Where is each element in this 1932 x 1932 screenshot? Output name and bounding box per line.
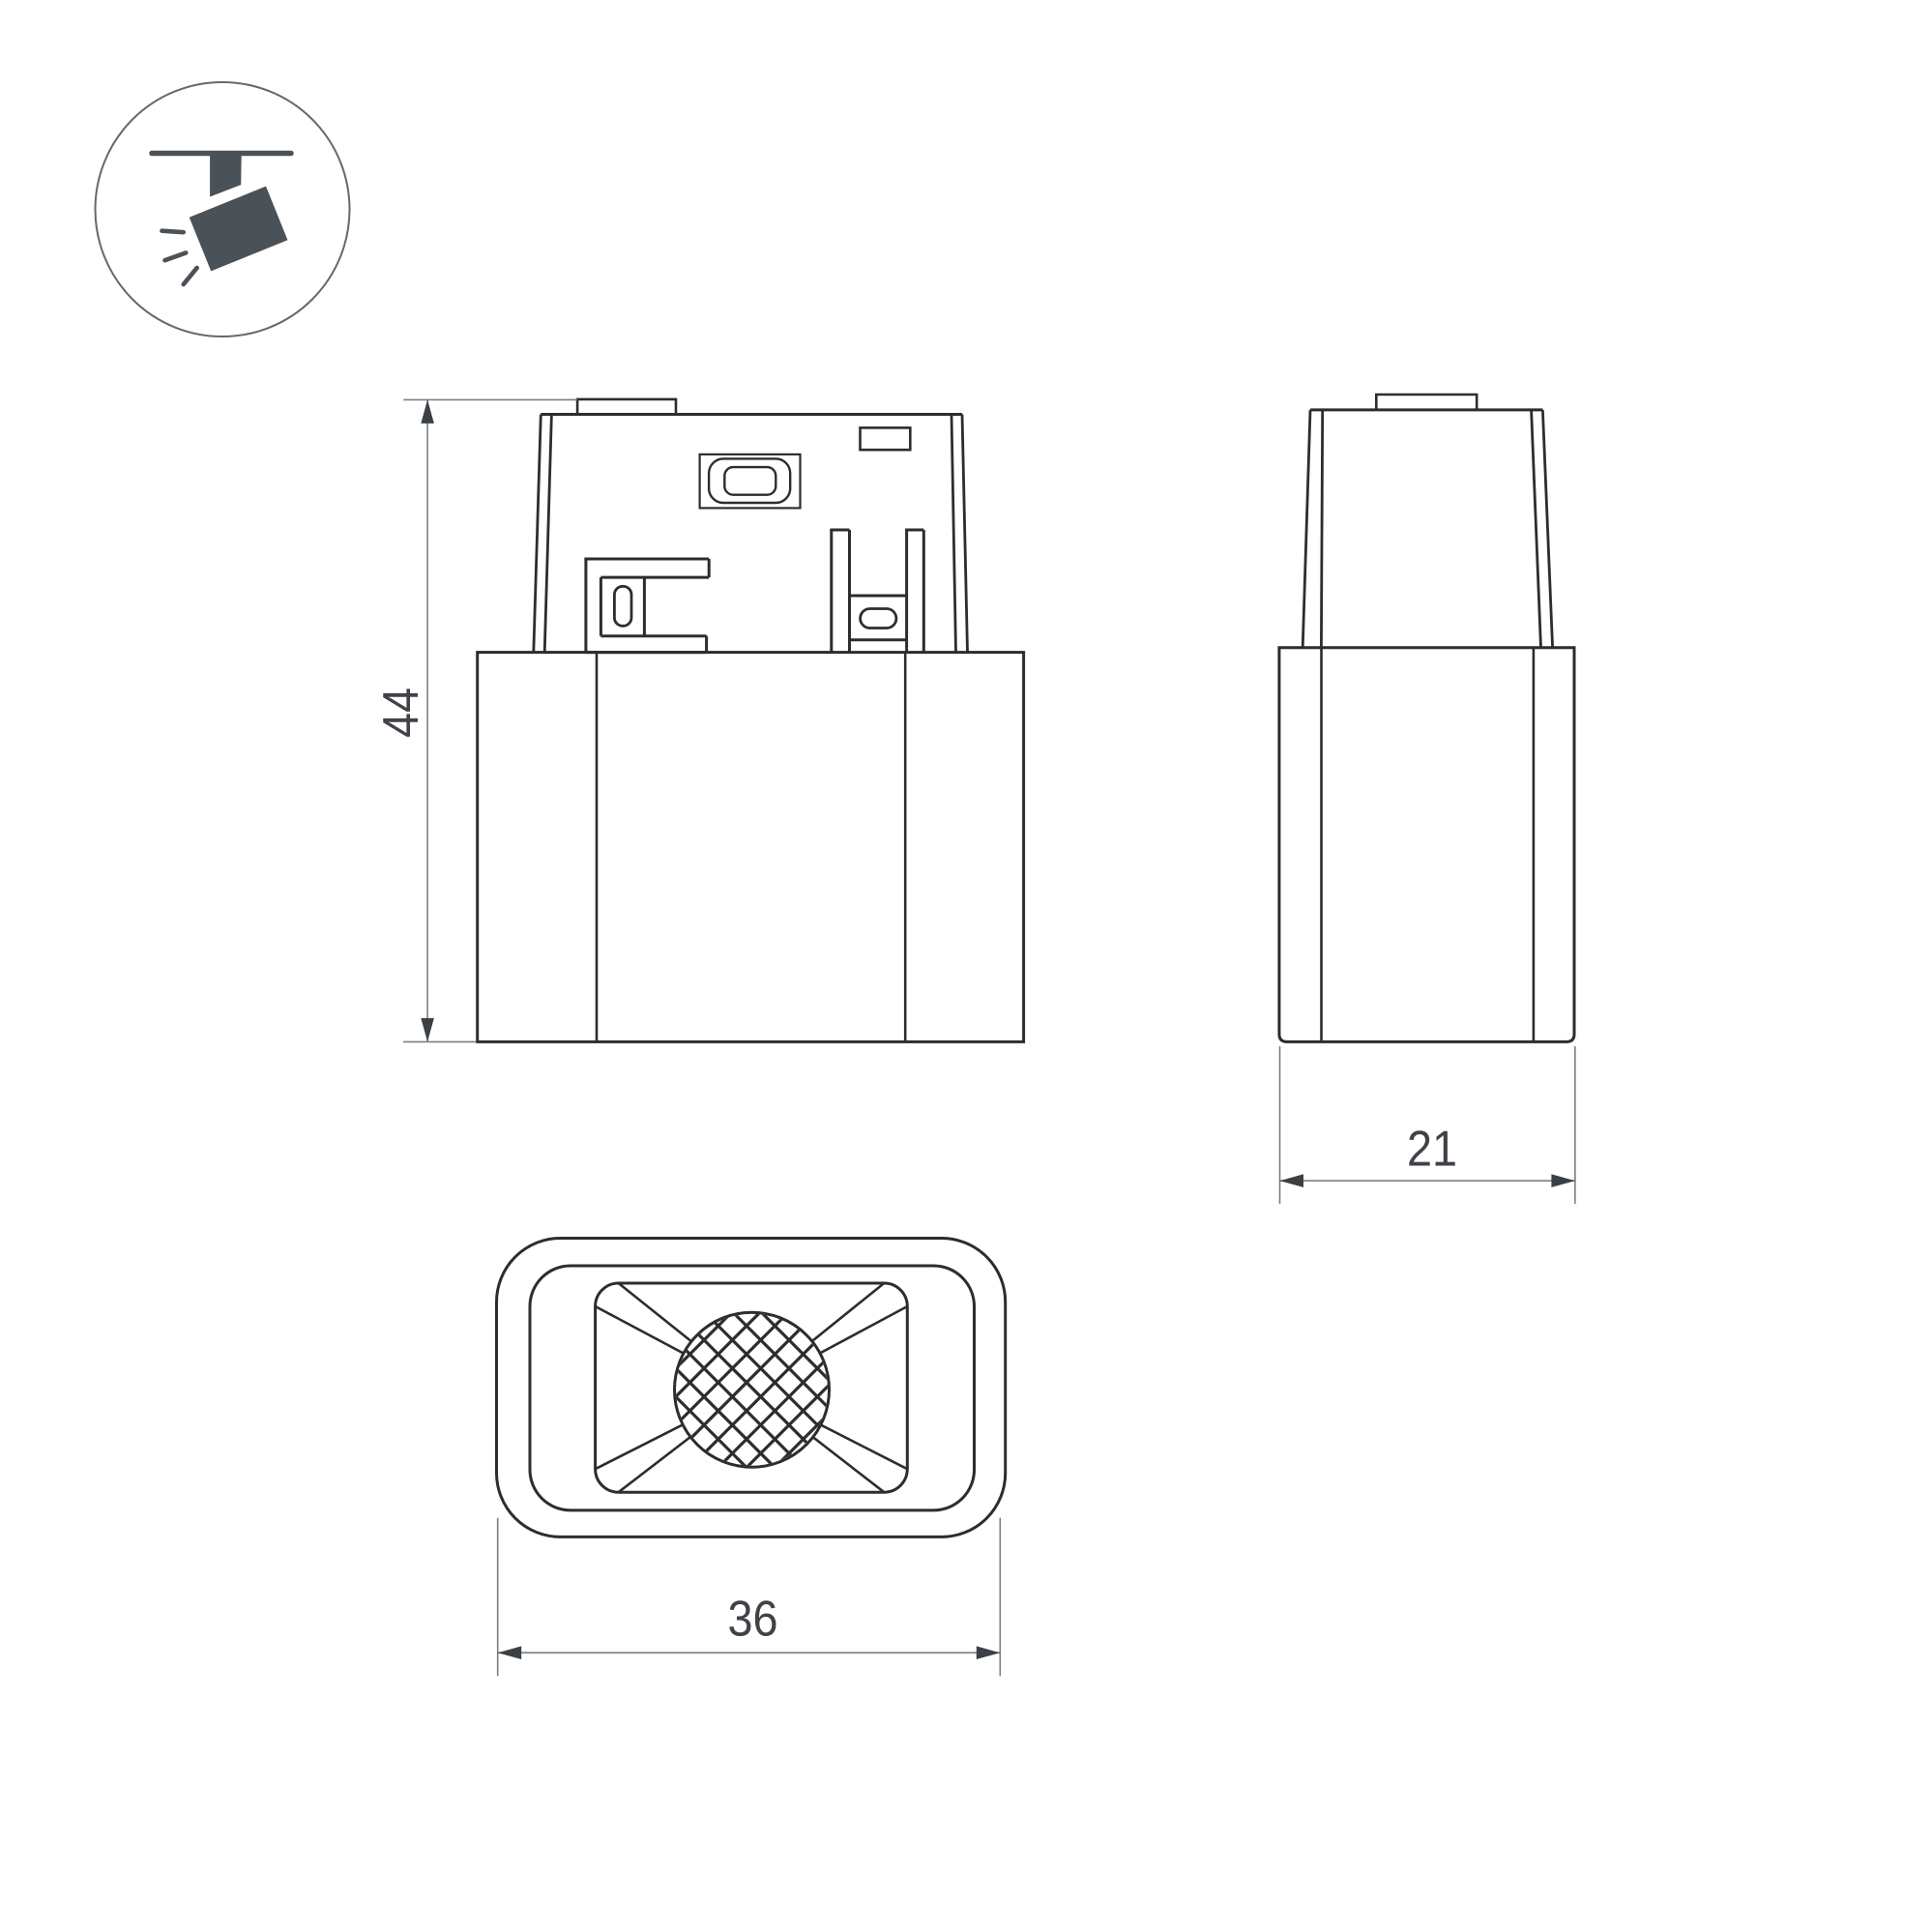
svg-text:36: 36 bbox=[727, 1591, 777, 1647]
svg-text:44: 44 bbox=[373, 688, 429, 738]
svg-text:21: 21 bbox=[1407, 1121, 1457, 1177]
